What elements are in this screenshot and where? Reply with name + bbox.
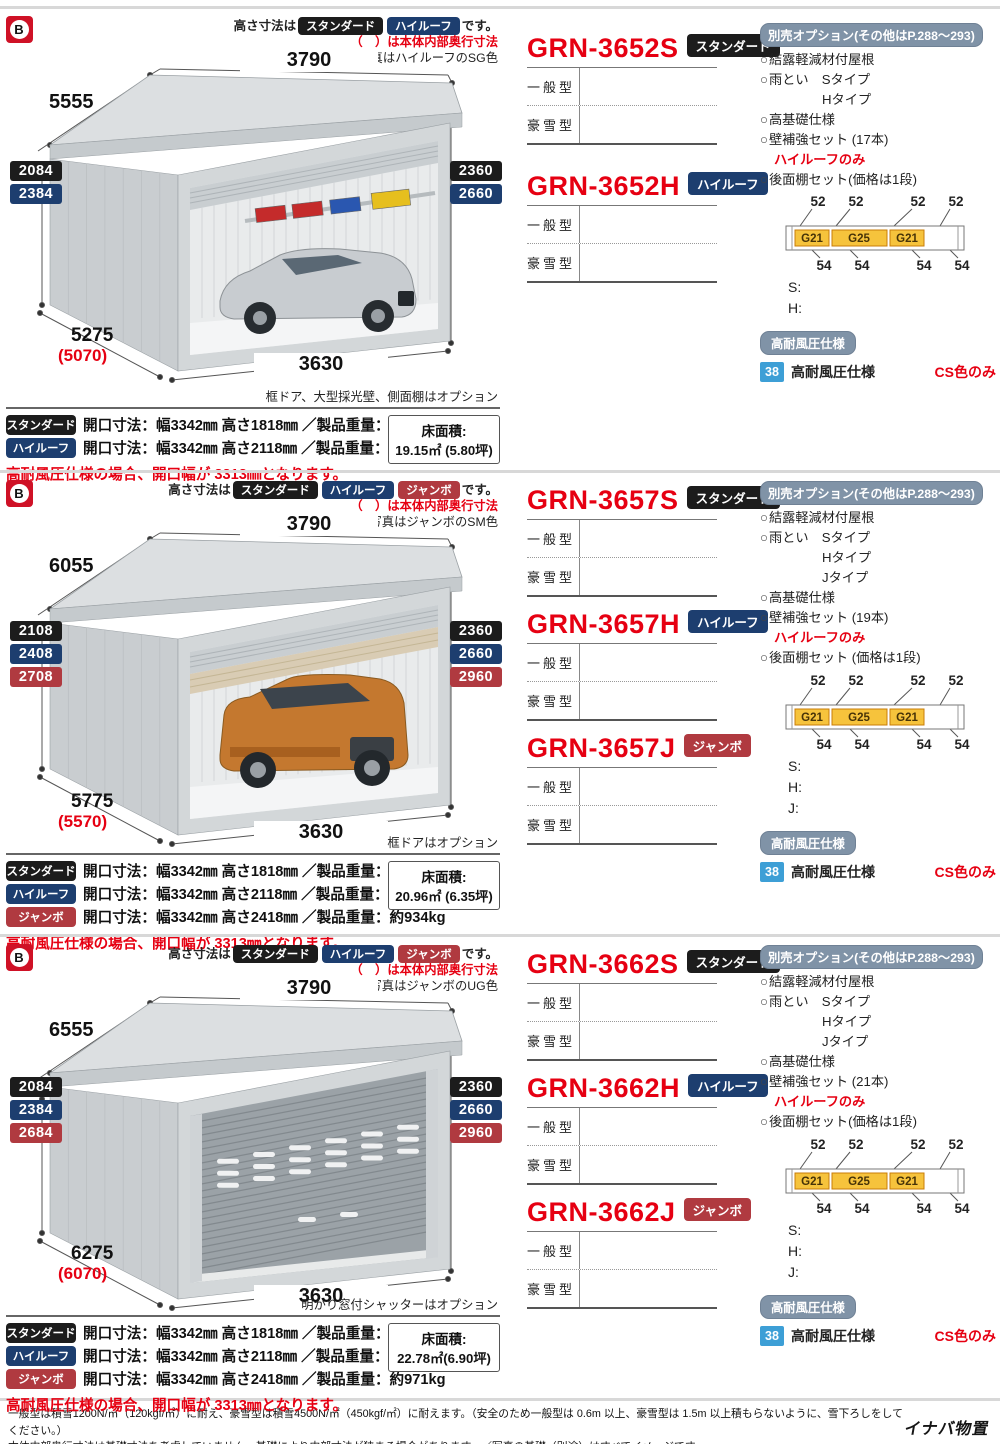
price-row-divider: [579, 520, 580, 557]
option-item: ○雨とい Sタイプ: [760, 528, 870, 548]
svg-text:54: 54: [816, 737, 832, 751]
wind-spec-label: 高耐風圧仕様: [791, 862, 875, 882]
option-item: Hタイプ: [760, 1012, 871, 1032]
price-table: 一般型豪雪型: [527, 767, 717, 845]
price-row-divider: [579, 206, 580, 243]
dim-bottom-depth: 6275: [66, 1243, 118, 1265]
floor-area-box: 床面積:19.15㎡ (5.80坪): [388, 415, 500, 464]
catalog-page: 一般型は積雪1200N/㎡（120kgf/㎡）に耐え、豪雪型は積雪4500N/㎡…: [0, 0, 1000, 1444]
price-row-label: 一般型: [527, 77, 579, 96]
product-code: GRN-3652H: [527, 171, 680, 201]
svg-text:54: 54: [954, 1201, 970, 1215]
dimension-chip: 2384: [10, 184, 62, 204]
options-header: 別売オプション(その他はP.288～293): [760, 945, 983, 969]
left-height-chips: 208423842684: [10, 1077, 62, 1146]
product-code: GRN-3662H: [527, 1073, 680, 1103]
svg-text:54: 54: [954, 258, 970, 272]
product-header: GRN-3662Hハイルーフ: [527, 1073, 717, 1104]
svg-text:G21: G21: [896, 1176, 918, 1188]
dimension-chip: 2408: [10, 644, 62, 664]
dim-bottom-depth-inner: (5570): [58, 812, 107, 832]
dim-depth: 6055: [44, 555, 99, 578]
product-block: GRN-3662Jジャンボ一般型豪雪型: [527, 1197, 717, 1309]
price-type-labels: S:H:: [788, 277, 802, 319]
floor-area-value: 20.96㎡ (6.35坪): [391, 886, 497, 905]
price-row-divider: [579, 1108, 580, 1145]
wind-spec-badge: 高耐風圧仕様: [760, 1295, 856, 1319]
price-row-divider: [579, 644, 580, 681]
dimension-chip: 2960: [450, 1123, 502, 1143]
price-row-label: 豪雪型: [527, 567, 579, 586]
price-row-divider: [579, 68, 580, 105]
price-row: 豪雪型: [527, 557, 717, 595]
svg-text:G25: G25: [848, 712, 870, 724]
option-bullet: ○: [760, 52, 768, 67]
price-row: 豪雪型: [527, 105, 717, 143]
dimension-chip: 2360: [450, 621, 502, 641]
price-row-label: 豪雪型: [527, 815, 579, 834]
shelf-diagram-wrap: 5252 5252 5454 5454 G21G25G21: [772, 671, 978, 756]
spec-row: ハイルーフ開口寸法：幅3342㎜ 高さ2118㎜ ／製品重量：約818kg: [6, 436, 384, 459]
dim-top-width: 3790: [240, 513, 378, 536]
dim-top-width: 3790: [240, 977, 378, 1000]
svg-text:52: 52: [848, 673, 863, 688]
price-row-divider: [579, 1270, 580, 1307]
product-header: GRN-3657Sスタンダード: [527, 485, 717, 516]
footer-note-line2: 本体内部奥行寸法は基礎寸法を考慮していません。基礎により内部寸法が狭まる場合があ…: [8, 1439, 908, 1444]
spec-type-badge: ジャンボ: [6, 907, 76, 927]
shelf-diagram-wrap: 5252 5252 5454 5454 G21G25G21: [772, 1135, 978, 1220]
floor-area-value: 22.78㎡(6.90坪): [391, 1348, 497, 1367]
right-height-chips: 236026602960: [450, 621, 502, 690]
option-item: ハイルーフのみ: [760, 150, 865, 170]
left-height-chips: 20842384: [10, 161, 62, 207]
height-note-prefix: 高さ寸法は: [168, 483, 231, 497]
floor-area-label: 床面積:: [391, 1328, 497, 1348]
inaba-logo: イナバ物置: [903, 1415, 992, 1439]
product-block: GRN-3652Sスタンダード一般型豪雪型: [527, 33, 717, 145]
option-item: Hタイプ: [760, 90, 871, 110]
svg-text:54: 54: [854, 737, 870, 751]
option-item: ○高基礎仕様: [760, 1052, 835, 1072]
option-caption: 框ドアはオプション: [6, 833, 500, 851]
dimension-chip: 2660: [450, 184, 502, 204]
svg-text:52: 52: [910, 673, 925, 688]
left-height-chips: 210824082708: [10, 621, 62, 690]
spec-type-badge: スタンダード: [6, 1323, 76, 1343]
option-item: ○壁補強セット (17本): [760, 130, 888, 150]
svg-text:G21: G21: [896, 712, 918, 724]
price-row-label: 一般型: [527, 215, 579, 234]
price-row: 豪雪型: [527, 1269, 717, 1307]
option-item: Hタイプ: [760, 548, 871, 568]
price-row-divider: [579, 1146, 580, 1183]
rear-shelf-diagram: 5252 5252 5454 5454 G21G25G21: [772, 671, 978, 751]
product-header: GRN-3652Sスタンダード: [527, 33, 717, 64]
dim-depth: 6555: [44, 1019, 99, 1042]
svg-text:G21: G21: [896, 233, 918, 245]
option-item: ○雨とい Sタイプ: [760, 992, 870, 1012]
svg-text:G21: G21: [801, 233, 823, 245]
option-bullet: ○: [760, 72, 768, 87]
svg-text:52: 52: [948, 673, 963, 688]
price-row: 豪雪型: [527, 243, 717, 281]
price-row-label: 一般型: [527, 993, 579, 1012]
svg-text:G21: G21: [801, 712, 823, 724]
options-panel: 別売オプション(その他はP.288～293)○結露軽減材付屋根○雨とい Sタイプ…: [760, 945, 998, 1346]
price-row-divider: [579, 682, 580, 719]
color-availability-note: CS色のみ: [935, 362, 996, 382]
spec-type-badge: スタンダード: [6, 415, 76, 435]
right-height-chips: 236026602960: [450, 1077, 502, 1146]
price-table: 一般型豪雪型: [527, 205, 717, 283]
wind-rating-icon: 38: [760, 362, 784, 382]
option-item: ハイルーフのみ: [760, 1092, 865, 1112]
svg-text:G25: G25: [848, 1176, 870, 1188]
price-row-label: 豪雪型: [527, 1279, 579, 1298]
price-row-label: 一般型: [527, 1117, 579, 1136]
svg-text:52: 52: [810, 673, 825, 688]
options-header: 別売オプション(その他はP.288～293): [760, 481, 983, 505]
option-item: ○高基礎仕様: [760, 588, 835, 608]
price-table: 一般型豪雪型: [527, 519, 717, 597]
spec-row: ジャンボ開口寸法：幅3342㎜ 高さ2418㎜ ／製品重量：約934kg: [6, 905, 384, 928]
spec-type-badge: スタンダード: [6, 861, 76, 881]
product-section-2: B高さ寸法はスタンダードハイルーフジャンボです。（ ）は本体内部奥行寸法写真はジ…: [0, 470, 1000, 934]
price-row-divider: [579, 768, 580, 805]
option-bullet: ○: [760, 172, 768, 187]
option-bullet: ○: [760, 530, 768, 545]
svg-text:52: 52: [848, 194, 863, 209]
product-type-badge: ジャンボ: [684, 734, 751, 757]
product-type-badge: ハイルーフ: [688, 172, 768, 195]
product-code: GRN-3652S: [527, 33, 679, 63]
product-code: GRN-3657J: [527, 733, 676, 763]
price-row: 一般型: [527, 644, 717, 681]
height-note-prefix: 高さ寸法は: [168, 947, 231, 961]
spec-row: スタンダード開口寸法：幅3342㎜ 高さ1818㎜ ／製品重量：約797kg: [6, 1321, 384, 1344]
wind-rating-icon: 38: [760, 862, 784, 882]
option-item: ○結露軽減材付屋根: [760, 508, 874, 528]
option-bullet: ○: [760, 610, 768, 625]
option-item: ○壁補強セット (19本): [760, 608, 888, 628]
price-type-label: S:: [788, 756, 802, 777]
svg-text:54: 54: [854, 1201, 870, 1215]
option-item: ○壁補強セット (21本): [760, 1072, 888, 1092]
dim-depth: 5555: [44, 91, 99, 114]
option-caption: 明かり窓付シャッターはオプション: [6, 1295, 500, 1313]
price-row-divider: [579, 1022, 580, 1059]
option-bullet: ○: [760, 650, 768, 665]
height-note-suffix: です。: [462, 483, 498, 497]
price-table: 一般型豪雪型: [527, 67, 717, 145]
price-type-label: J:: [788, 1262, 802, 1283]
svg-text:G25: G25: [848, 233, 870, 245]
right-height-chips: 23602660: [450, 161, 502, 207]
option-bullet: ○: [760, 1074, 768, 1089]
price-row: 豪雪型: [527, 681, 717, 719]
rear-shelf-diagram: 5252 5252 5454 5454 G21G25G21: [772, 1135, 978, 1215]
product-type-badge: ハイルーフ: [688, 610, 768, 633]
price-table: 一般型豪雪型: [527, 1107, 717, 1185]
dimension-chip: 2360: [450, 1077, 502, 1097]
product-block: GRN-3652Hハイルーフ一般型豪雪型: [527, 171, 717, 283]
price-row-label: 豪雪型: [527, 253, 579, 272]
price-row-label: 一般型: [527, 529, 579, 548]
dimension-chip: 2660: [450, 644, 502, 664]
spec-type-badge: ハイルーフ: [6, 438, 76, 458]
spec-block: 明かり窓付シャッターはオプションスタンダード開口寸法：幅3342㎜ 高さ1818…: [6, 1295, 500, 1415]
product-code: GRN-3657S: [527, 485, 679, 515]
product-type-badge: ハイルーフ: [688, 1074, 768, 1097]
spec-row: ジャンボ開口寸法：幅3342㎜ 高さ2418㎜ ／製品重量：約971kg: [6, 1367, 384, 1390]
dim-bottom-depth-inner: (5070): [58, 346, 107, 366]
svg-text:54: 54: [816, 1201, 832, 1215]
price-row: 一般型: [527, 984, 717, 1021]
price-type-labels: S:H:J:: [788, 756, 802, 819]
price-row-label: 豪雪型: [527, 1031, 579, 1050]
wind-spec-label: 高耐風圧仕様: [791, 1326, 875, 1346]
svg-text:54: 54: [816, 258, 832, 272]
price-type-label: H:: [788, 1241, 802, 1262]
product-code: GRN-3662S: [527, 949, 679, 979]
option-item: ○結露軽減材付屋根: [760, 972, 874, 992]
option-item: ○後面棚セット(価格は1段): [760, 1112, 917, 1132]
option-bullet: ○: [760, 590, 768, 605]
svg-text:54: 54: [916, 1201, 932, 1215]
wind-spec-badge: 高耐風圧仕様: [760, 331, 856, 355]
height-note-suffix: です。: [462, 19, 498, 33]
price-type-label: H:: [788, 777, 802, 798]
product-section-1: B高さ寸法はスタンダードハイルーフです。（ ）は本体内部奥行寸法写真はハイルーフ…: [0, 6, 1000, 470]
spec-body: スタンダード開口寸法：幅3342㎜ 高さ1818㎜ ／製品重量：約797kgハイ…: [6, 1315, 500, 1415]
floor-area-box: 床面積:22.78㎡(6.90坪): [388, 1323, 500, 1372]
option-bullet: ○: [760, 510, 768, 525]
price-row: 一般型: [527, 520, 717, 557]
product-code: GRN-3657H: [527, 609, 680, 639]
dimension-chip: 2108: [10, 621, 62, 641]
color-availability-note: CS色のみ: [935, 862, 996, 882]
floor-area-box: 床面積:20.96㎡ (6.35坪): [388, 861, 500, 910]
option-item: Jタイプ: [760, 1032, 868, 1052]
price-table: 一般型豪雪型: [527, 643, 717, 721]
product-header: GRN-3657Jジャンボ: [527, 733, 717, 764]
spec-row: ハイルーフ開口寸法：幅3342㎜ 高さ2118㎜ ／製品重量：約890kg: [6, 1344, 384, 1367]
product-code: GRN-3662J: [527, 1197, 676, 1227]
options-panel: 別売オプション(その他はP.288～293)○結露軽減材付屋根○雨とい Sタイプ…: [760, 23, 998, 382]
price-type-labels: S:H:J:: [788, 1220, 802, 1283]
product-header: GRN-3662Sスタンダード: [527, 949, 717, 980]
price-row-divider: [579, 106, 580, 143]
price-row: 一般型: [527, 768, 717, 805]
product-block: GRN-3657Hハイルーフ一般型豪雪型: [527, 609, 717, 721]
price-type-label: S:: [788, 277, 802, 298]
shelf-diagram-wrap: 5252 5252 5454 5454 G21G25G21: [772, 192, 978, 277]
spec-row: ハイルーフ開口寸法：幅3342㎜ 高さ2118㎜ ／製品重量：約858kg: [6, 882, 384, 905]
price-row: 豪雪型: [527, 1021, 717, 1059]
wind-spec-row: 38高耐風圧仕様CS色のみ: [760, 362, 998, 382]
dimension-chip: 2084: [10, 1077, 62, 1097]
svg-text:G21: G21: [801, 1176, 823, 1188]
option-bullet: ○: [760, 132, 768, 147]
price-row-divider: [579, 1232, 580, 1269]
option-bullet: ○: [760, 112, 768, 127]
price-row-divider: [579, 806, 580, 843]
spec-row: スタンダード開口寸法：幅3342㎜ 高さ1818㎜ ／製品重量：約770kg: [6, 859, 384, 882]
option-item: ○後面棚セット(価格は1段): [760, 170, 917, 190]
dim-bottom-depth: 5775: [66, 791, 118, 813]
spec-type-badge: ハイルーフ: [6, 884, 76, 904]
options-header: 別売オプション(その他はP.288～293): [760, 23, 983, 47]
svg-text:52: 52: [848, 1137, 863, 1152]
product-block: GRN-3657Sスタンダード一般型豪雪型: [527, 485, 717, 597]
option-caption: 框ドア、大型採光壁、側面棚はオプション: [6, 387, 500, 405]
option-item: ○雨とい Sタイプ: [760, 70, 870, 90]
product-header: GRN-3652Hハイルーフ: [527, 171, 717, 202]
wind-spec-row: 38高耐風圧仕様CS色のみ: [760, 862, 998, 882]
option-item: ○結露軽減材付屋根: [760, 50, 874, 70]
svg-text:54: 54: [854, 258, 870, 272]
floor-area-label: 床面積:: [391, 866, 497, 886]
product-block: GRN-3662Sスタンダード一般型豪雪型: [527, 949, 717, 1061]
svg-text:54: 54: [916, 258, 932, 272]
options-panel: 別売オプション(その他はP.288～293)○結露軽減材付屋根○雨とい Sタイプ…: [760, 481, 998, 882]
dimension-chip: 2660: [450, 1100, 502, 1120]
price-type-label: H:: [788, 298, 802, 319]
price-row-label: 一般型: [527, 1241, 579, 1260]
dimension-chip: 2684: [10, 1123, 62, 1143]
option-item: ハイルーフのみ: [760, 628, 865, 648]
wind-spec-row: 38高耐風圧仕様CS色のみ: [760, 1326, 998, 1346]
dimension-chip: 2708: [10, 667, 62, 687]
option-item: ○高基礎仕様: [760, 110, 835, 130]
option-item: ○後面棚セット (価格は1段): [760, 648, 921, 668]
price-row: 豪雪型: [527, 1145, 717, 1183]
spec-row: スタンダード開口寸法：幅3342㎜ 高さ1818㎜ ／製品重量：約734kg: [6, 413, 384, 436]
dimension-chip: 2360: [450, 161, 502, 181]
height-note-suffix: です。: [462, 947, 498, 961]
svg-text:52: 52: [810, 194, 825, 209]
price-row-label: 豪雪型: [527, 691, 579, 710]
option-bullet: ○: [760, 974, 768, 989]
floor-area-label: 床面積:: [391, 420, 497, 440]
price-table: 一般型豪雪型: [527, 983, 717, 1061]
price-row-label: 一般型: [527, 777, 579, 796]
price-row-divider: [579, 244, 580, 281]
color-availability-note: CS色のみ: [935, 1326, 996, 1346]
wind-width-note: 高耐風圧仕様の場合、開口幅が 3313㎜となります。: [6, 1394, 500, 1415]
price-row: 一般型: [527, 1232, 717, 1269]
svg-text:52: 52: [910, 194, 925, 209]
product-block: GRN-3662Hハイルーフ一般型豪雪型: [527, 1073, 717, 1185]
price-row-label: 豪雪型: [527, 1155, 579, 1174]
product-header: GRN-3662Jジャンボ: [527, 1197, 717, 1228]
product-block: GRN-3657Jジャンボ一般型豪雪型: [527, 733, 717, 845]
dim-bottom-width: 3630: [254, 353, 388, 376]
wind-spec-badge: 高耐風圧仕様: [760, 831, 856, 855]
height-note-prefix: 高さ寸法は: [234, 19, 297, 33]
price-row: 豪雪型: [527, 805, 717, 843]
rear-shelf-diagram: 5252 5252 5454 5454 G21G25G21: [772, 192, 978, 272]
svg-text:54: 54: [916, 737, 932, 751]
spec-type-badge: ハイルーフ: [6, 1346, 76, 1366]
product-section-3: B高さ寸法はスタンダードハイルーフジャンボです。（ ）は本体内部奥行寸法写真はジ…: [0, 934, 1000, 1398]
option-bullet: ○: [760, 994, 768, 1009]
price-row: 一般型: [527, 206, 717, 243]
price-row: 一般型: [527, 68, 717, 105]
price-type-label: J:: [788, 798, 802, 819]
spec-type-badge: ジャンボ: [6, 1369, 76, 1389]
wind-rating-icon: 38: [760, 1326, 784, 1346]
option-bullet: ○: [760, 1114, 768, 1129]
dim-bottom-depth: 5275: [66, 325, 118, 347]
price-type-label: S:: [788, 1220, 802, 1241]
svg-text:52: 52: [910, 1137, 925, 1152]
wind-spec-label: 高耐風圧仕様: [791, 362, 875, 382]
price-row: 一般型: [527, 1108, 717, 1145]
svg-text:52: 52: [810, 1137, 825, 1152]
dim-bottom-depth-inner: (6070): [58, 1264, 107, 1284]
dimension-chip: 2084: [10, 161, 62, 181]
option-bullet: ○: [760, 1054, 768, 1069]
dim-top-width: 3790: [240, 49, 378, 72]
option-item: Jタイプ: [760, 568, 868, 588]
product-type-badge: ジャンボ: [684, 1198, 751, 1221]
product-header: GRN-3657Hハイルーフ: [527, 609, 717, 640]
svg-text:52: 52: [948, 1137, 963, 1152]
svg-text:54: 54: [954, 737, 970, 751]
price-row-divider: [579, 984, 580, 1021]
dimension-chip: 2384: [10, 1100, 62, 1120]
floor-area-value: 19.15㎡ (5.80坪): [391, 440, 497, 459]
price-table: 一般型豪雪型: [527, 1231, 717, 1309]
price-row-label: 豪雪型: [527, 115, 579, 134]
price-row-divider: [579, 558, 580, 595]
dimension-chip: 2960: [450, 667, 502, 687]
price-row-label: 一般型: [527, 653, 579, 672]
svg-text:52: 52: [948, 194, 963, 209]
